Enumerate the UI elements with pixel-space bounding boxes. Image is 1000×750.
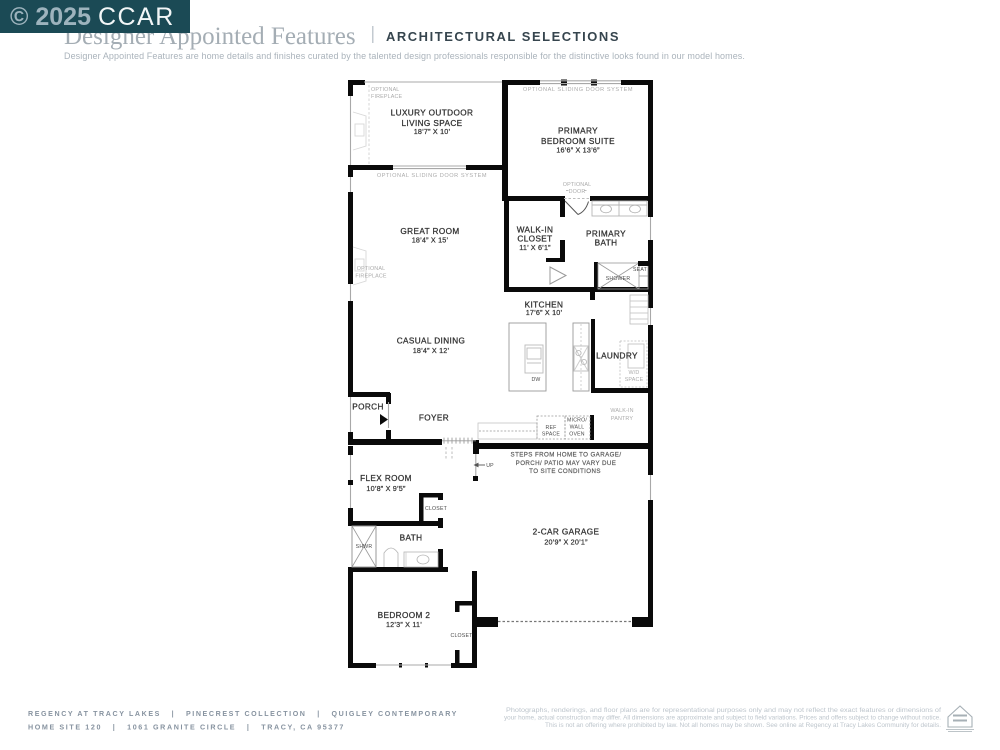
svg-text:12’3” X 11’: 12’3” X 11’ <box>386 620 422 629</box>
svg-text:Designer Appointed Features ar: Designer Appointed Features are home det… <box>64 51 745 61</box>
svg-text:SPACE: SPACE <box>542 432 561 438</box>
svg-text:OVEN: OVEN <box>569 432 585 438</box>
svg-text:UP: UP <box>486 463 494 469</box>
svg-text:TO SITE CONDITIONS: TO SITE CONDITIONS <box>529 468 601 475</box>
svg-text:FOYER: FOYER <box>419 414 449 423</box>
svg-text:OPTIONAL: OPTIONAL <box>357 266 385 272</box>
svg-text:10’8” X 9’5”: 10’8” X 9’5” <box>366 484 406 493</box>
svg-text:SHWR: SHWR <box>356 544 373 550</box>
svg-text:16’6” X 13’6”: 16’6” X 13’6” <box>556 146 600 155</box>
svg-text:ARCHITECTURAL SELECTIONS: ARCHITECTURAL SELECTIONS <box>386 29 620 44</box>
svg-text:20’9” X 20’1”: 20’9” X 20’1” <box>544 538 588 547</box>
svg-text:CLOSET: CLOSET <box>425 506 448 512</box>
svg-text:FLEX ROOM: FLEX ROOM <box>360 474 412 483</box>
svg-text:18’4” X 15’: 18’4” X 15’ <box>412 236 449 245</box>
svg-text:STEPS FROM HOME TO GARAGE/: STEPS FROM HOME TO GARAGE/ <box>511 451 622 458</box>
svg-text:BEDROOM 2: BEDROOM 2 <box>378 611 431 620</box>
svg-text:HOME SITE 120 | 1061 GRANI: HOME SITE 120 | 1061 GRANITE CIRCLE | TR… <box>28 723 345 732</box>
svg-text:REGENCY AT TRACY LAKES | P: REGENCY AT TRACY LAKES | PINECREST COLLE… <box>28 709 458 718</box>
svg-text:PORCH/ PATIO MAY VARY DUE: PORCH/ PATIO MAY VARY DUE <box>516 460 617 467</box>
svg-text:2-CAR GARAGE: 2-CAR GARAGE <box>533 528 600 537</box>
svg-text:BATH: BATH <box>400 534 423 543</box>
svg-text:Photographs, renderings, and f: Photographs, renderings, and floor plans… <box>506 708 941 714</box>
svg-text:SHOWER: SHOWER <box>606 276 631 282</box>
svg-text:SPACE: SPACE <box>625 377 644 383</box>
svg-text:CLOSET: CLOSET <box>451 633 474 639</box>
svg-text:BATH: BATH <box>595 238 618 247</box>
svg-text:DW: DW <box>531 377 540 383</box>
svg-text:DOOR: DOOR <box>569 189 586 195</box>
svg-text:FIREPLACE: FIREPLACE <box>371 94 403 100</box>
svg-text:your home, actual construction: your home, actual construction may diffe… <box>504 716 941 722</box>
svg-text:PORCH: PORCH <box>352 403 384 412</box>
svg-text:SEAT: SEAT <box>633 267 648 273</box>
svg-text:LUXURY OUTDOOR: LUXURY OUTDOOR <box>391 108 474 117</box>
svg-text:WALL: WALL <box>570 425 585 431</box>
svg-text:18’7” X 10’: 18’7” X 10’ <box>414 127 451 136</box>
svg-text:OPTIONAL SLIDING DOOR SYSTEM: OPTIONAL SLIDING DOOR SYSTEM <box>377 173 487 179</box>
svg-text:OPTIONAL: OPTIONAL <box>371 87 399 93</box>
svg-text:FIREPLACE: FIREPLACE <box>355 274 387 280</box>
svg-text:WALK-IN: WALK-IN <box>517 226 554 235</box>
svg-text:REF: REF <box>546 425 557 431</box>
svg-text:LAUNDRY: LAUNDRY <box>596 352 638 361</box>
svg-text:MICRO/: MICRO/ <box>567 418 587 424</box>
svg-text:WALK-IN: WALK-IN <box>610 408 633 414</box>
svg-text:OPTIONAL: OPTIONAL <box>563 182 591 188</box>
svg-text:CASUAL DINING: CASUAL DINING <box>397 337 466 346</box>
svg-text:© 2025 CCAR: © 2025 CCAR <box>10 3 175 31</box>
svg-text:PANTRY: PANTRY <box>611 416 634 422</box>
svg-text:OPTIONAL SLIDING DOOR SYSTEM: OPTIONAL SLIDING DOOR SYSTEM <box>523 87 633 93</box>
svg-text:W/D: W/D <box>629 370 640 376</box>
svg-text:GREAT ROOM: GREAT ROOM <box>400 227 459 236</box>
svg-text:PRIMARY: PRIMARY <box>586 230 626 239</box>
svg-text:PRIMARY: PRIMARY <box>558 126 598 135</box>
svg-text:18’4” X 12’: 18’4” X 12’ <box>413 346 450 355</box>
svg-text:17’6” X 10’: 17’6” X 10’ <box>526 308 563 317</box>
svg-text:11’ X 6’1”: 11’ X 6’1” <box>519 243 551 252</box>
svg-text:This is not an offering where: This is not an offering where prohibited… <box>545 723 941 729</box>
